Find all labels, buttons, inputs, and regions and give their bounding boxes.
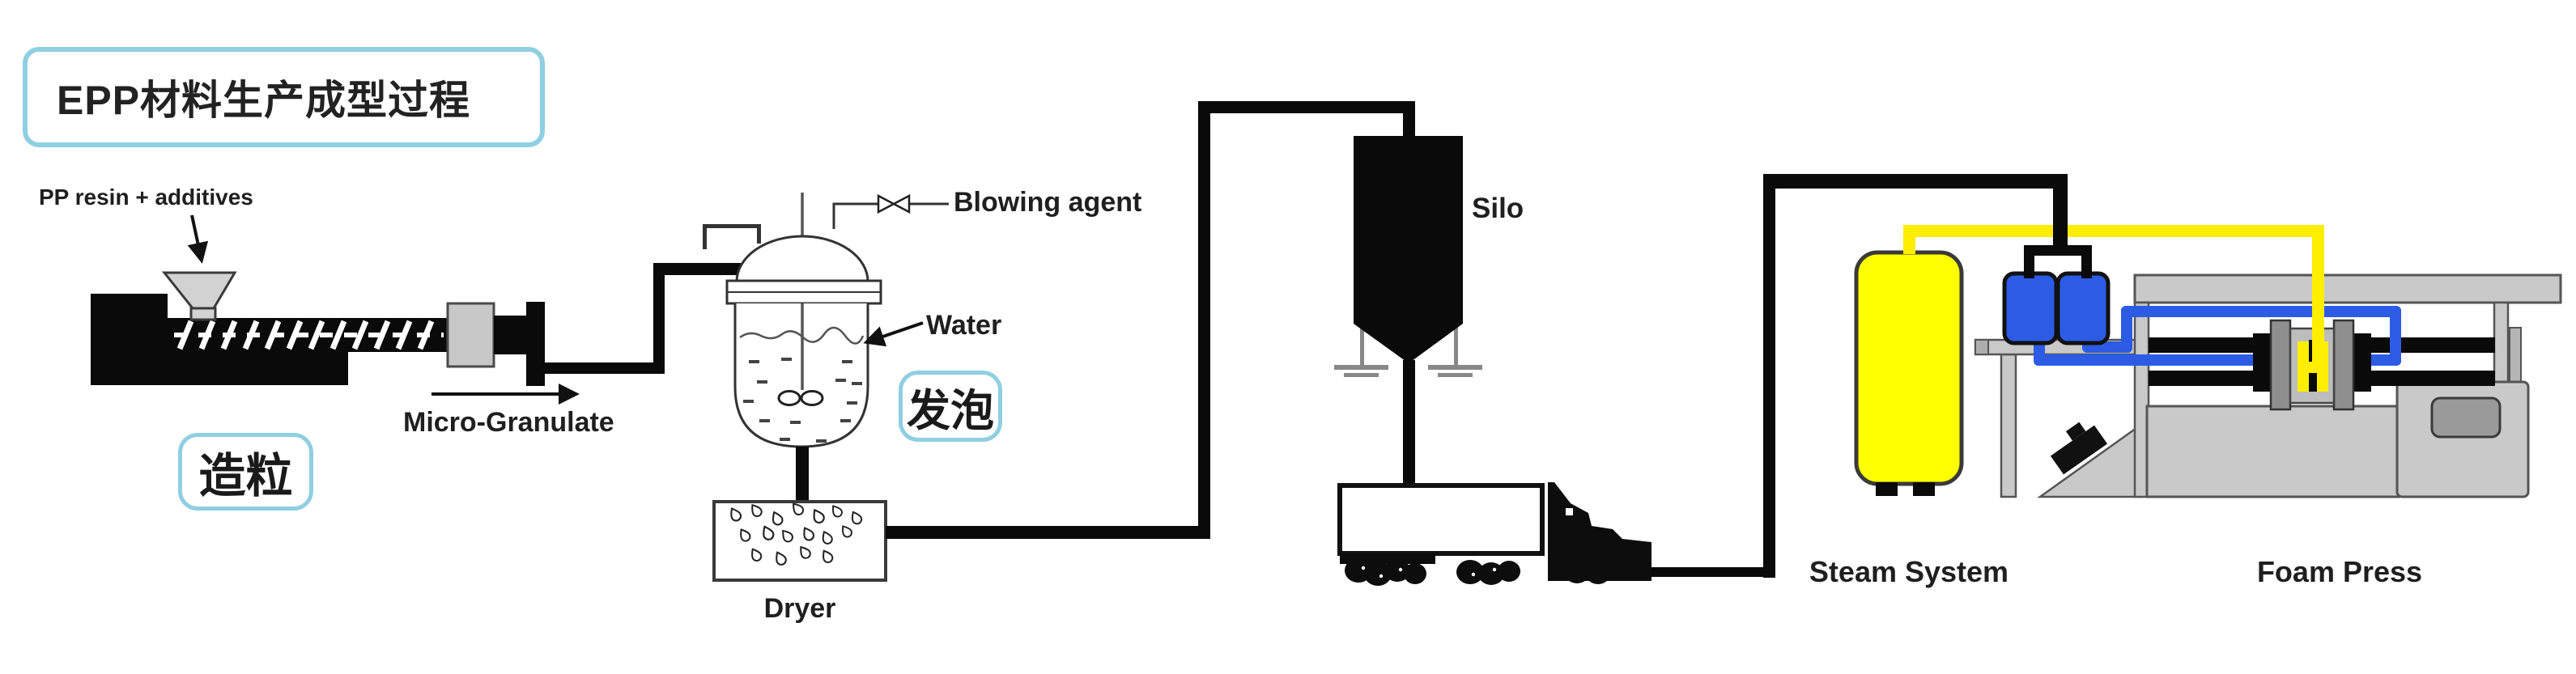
silo-icon xyxy=(1334,136,1482,487)
foaming-stage-box: 发泡 xyxy=(899,371,1002,442)
extruder-icon xyxy=(91,273,653,386)
vessel-bracket-icon xyxy=(703,224,761,249)
pp-resin-arrow xyxy=(192,215,202,261)
discharge-ramp-icon xyxy=(2040,416,2142,497)
blowing-agent-valve-icon xyxy=(834,196,949,229)
steam-system-label: Steam System xyxy=(1804,555,2014,589)
blue-tanks-icon xyxy=(2004,273,2108,343)
water-arrow xyxy=(866,323,923,342)
micro-granulate-label: Micro-Granulate xyxy=(403,407,614,439)
reactor-vessel-icon xyxy=(703,193,881,502)
diagram-title-box: EPP材料生产成型过程 xyxy=(23,47,545,147)
hopper-icon xyxy=(164,273,235,320)
silo-label: Silo xyxy=(1472,193,1524,225)
foaming-stage-label: 发泡 xyxy=(907,375,994,439)
granulation-stage-box: 造粒 xyxy=(178,433,313,511)
granulation-stage-label: 造粒 xyxy=(198,438,292,506)
pp-resin-label: PP resin + additives xyxy=(39,184,253,210)
epp-process-diagram: EPP材料生产成型过程 PP resin + additives Micro-G… xyxy=(0,0,2576,674)
blowing-agent-label: Blowing agent xyxy=(954,187,1141,218)
pipe-truck-to-press xyxy=(1651,567,1765,577)
diagram-title: EPP材料生产成型过程 xyxy=(57,68,470,126)
water-label: Water xyxy=(926,310,1001,341)
truck-icon xyxy=(1340,482,1651,586)
dryer-label: Dryer xyxy=(729,593,871,625)
steam-tank-icon xyxy=(1856,252,1962,496)
foam-press-label: Foam Press xyxy=(2233,555,2446,589)
dryer-icon xyxy=(714,501,886,580)
